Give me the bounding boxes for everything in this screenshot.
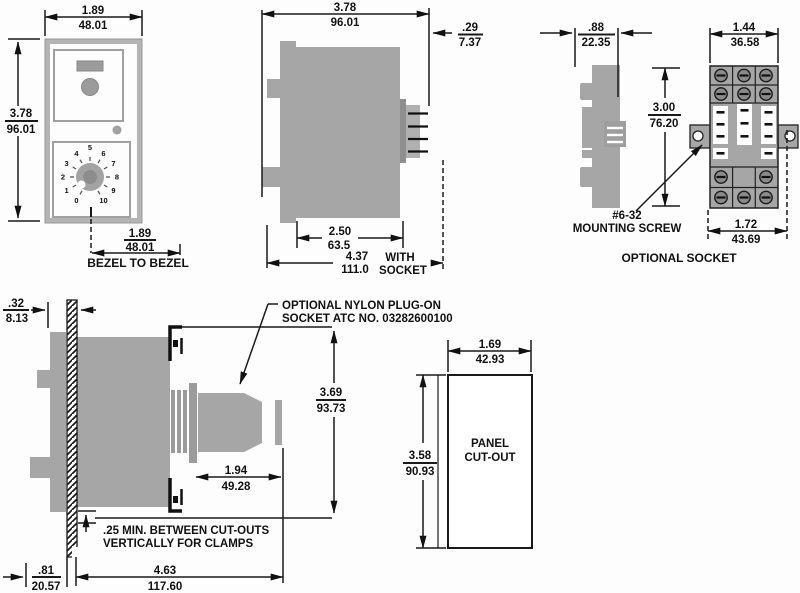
dial-knob-inner (83, 170, 97, 184)
dim-mount-offset-mm: 20.57 (32, 581, 61, 593)
nylon-socket-note-1: OPTIONAL NYLON PLUG-ON (282, 300, 441, 312)
mount-body (68, 337, 170, 507)
dial-label-5: 5 (88, 143, 92, 152)
dim-cutout-height: 3.58 90.93 (403, 375, 446, 548)
dial-label-10: 10 (99, 196, 107, 205)
dim-side-depth-in: 3.78 (334, 2, 357, 14)
dim-side-case: 2.50 63.5 (297, 221, 403, 252)
dim-side-pin-mm: 7.37 (459, 37, 481, 49)
dim-front-height-mm: 96.01 (7, 124, 36, 136)
dim-panel-mm: 8.13 (6, 313, 28, 325)
dial-label-0: 0 (74, 196, 78, 205)
dim-mount-total-in: 4.63 (154, 565, 176, 577)
dim-panel-thickness: .32 8.13 (3, 298, 96, 328)
dim-socket-depth-in: .88 (588, 22, 605, 34)
mount-socket-cap (275, 400, 282, 445)
with-socket-note-2: SOCKET (379, 265, 427, 277)
dim-socket-length-mm: 49.28 (222, 481, 251, 493)
side-flange (280, 41, 296, 223)
clamp-note-2: VERTICALLY FOR CLAMPS (103, 538, 253, 550)
dim-front-height: 3.78 96.01 (5, 39, 40, 221)
dim-socket-height-in: 3.00 (653, 102, 675, 114)
mount-tab-top (37, 370, 50, 388)
dial-label-1: 1 (65, 186, 69, 195)
side-body (296, 47, 400, 218)
dim-mount-offset: .81 20.57 (3, 557, 67, 593)
dim-bezel-in: 1.89 (129, 228, 151, 240)
mount-clamp-bottom (170, 478, 182, 511)
front-view: 0 1 2 3 4 5 6 7 8 9 10 1.89 48.01 3.78 9… (5, 5, 189, 270)
dim-front-width-in: 1.89 (82, 5, 104, 17)
with-socket-note-1: WITH (385, 252, 414, 264)
dim-socket-width: 1.44 36.58 (710, 22, 778, 63)
mounting-view: OPTIONAL NYLON PLUG-ON SOCKET ATC NO. 03… (3, 298, 453, 593)
dim-socket-length: 1.94 49.28 (196, 448, 283, 583)
mount-panel-notch (72, 547, 78, 558)
clamp-clearance-note: .25 MIN. BETWEEN CUT-OUTS VERTICALLY FOR… (78, 511, 269, 550)
dial-label-9: 9 (111, 186, 115, 195)
dim-mount-total: 4.63 117.60 (76, 557, 283, 593)
socket-side-profile (580, 65, 626, 208)
nylon-socket-note-2: SOCKET ATC NO. 03282600100 (282, 313, 453, 325)
front-indicator-bar (77, 61, 103, 71)
optional-socket-title: OPTIONAL SOCKET (621, 251, 737, 265)
dim-side-total-in: 4.37 (346, 251, 368, 263)
dim-front-width: 1.89 48.01 (45, 5, 142, 36)
dim-socket-mounting-mm: 43.69 (732, 234, 761, 246)
front-led (113, 126, 122, 135)
panel-cutout-view: PANEL CUT-OUT 1.69 42.93 3.58 90.93 (403, 339, 532, 548)
dim-socket-length-in: 1.94 (225, 465, 248, 477)
mounting-screw-note-2: MOUNTING SCREW (573, 223, 682, 235)
dial-label-8: 8 (115, 173, 119, 182)
dim-socket-height: 3.00 76.20 (648, 68, 681, 206)
dim-mount-height: 3.69 93.73 (316, 331, 346, 513)
mount-pins (171, 383, 197, 463)
mount-clamp-top (170, 327, 182, 361)
side-view: 3.78 96.01 .29 7.37 2.50 63.5 4.37 111.0… (262, 2, 483, 277)
dimension-drawing: 0 1 2 3 4 5 6 7 8 9 10 1.89 48.01 3.78 9… (0, 0, 800, 593)
clamp-note-1: .25 MIN. BETWEEN CUT-OUTS (103, 525, 269, 537)
mount-plug-socket (198, 393, 262, 452)
socket-front (690, 66, 798, 208)
side-tab-bottom (262, 167, 280, 187)
dim-cutout-width-mm: 42.93 (476, 354, 505, 366)
mount-panel (67, 300, 77, 557)
dim-socket-width-in: 1.44 (733, 22, 756, 34)
side-tab-top (267, 79, 280, 98)
dim-socket-mounting-in: 1.72 (735, 219, 757, 231)
dim-socket-width-mm: 36.58 (731, 37, 760, 49)
dial-knob-notch (78, 181, 86, 189)
dimension-drawing-page: 0 1 2 3 4 5 6 7 8 9 10 1.89 48.01 3.78 9… (0, 0, 800, 593)
dim-cutout-width-in: 1.69 (479, 339, 501, 351)
front-indicator-circle (82, 79, 99, 96)
dim-mount-height-in: 3.69 (320, 387, 342, 399)
dim-side-total-mm: 111.0 (341, 264, 369, 276)
dial-label-3: 3 (65, 159, 69, 168)
dial-label-7: 7 (111, 159, 115, 168)
dim-side-depth-mm: 96.01 (331, 17, 360, 29)
dim-panel-in: .32 (8, 298, 24, 310)
bezel-to-bezel-label: BEZEL TO BEZEL (87, 256, 189, 270)
dim-cutout-height-in: 3.58 (409, 450, 432, 462)
dim-bezel-mm: 48.01 (126, 242, 155, 254)
cutout-label-1: PANEL (471, 438, 509, 450)
dim-bezel-to-bezel: 1.89 48.01 BEZEL TO BEZEL (87, 219, 189, 270)
dim-cutout-height-mm: 90.93 (406, 466, 435, 478)
dim-mount-offset-in: .81 (38, 565, 55, 577)
dim-cutout-width: 1.69 42.93 (448, 339, 531, 372)
dim-socket-depth-mm: 22.35 (582, 37, 611, 49)
dim-front-width-mm: 48.01 (79, 20, 108, 32)
dim-socket-height-mm: 76.20 (650, 118, 679, 130)
optional-socket-view: .88 22.35 (540, 22, 798, 265)
socket-ear-left-hole (693, 131, 703, 141)
dial-label-6: 6 (101, 149, 105, 158)
dim-front-height-in: 3.78 (10, 108, 33, 120)
dim-side-pin: .29 7.37 (433, 22, 483, 49)
cutout-label-2: CUT-OUT (464, 452, 515, 464)
mount-flange (50, 332, 66, 512)
dim-mount-height-mm: 93.73 (317, 403, 346, 415)
mounting-screw-note-1: #6-32 (612, 210, 641, 222)
dim-mount-total-mm: 117.60 (148, 581, 183, 593)
side-socket-plate (400, 99, 406, 163)
mount-tab-bottom (30, 457, 50, 478)
dial-label-2: 2 (61, 173, 65, 182)
nylon-socket-note: OPTIONAL NYLON PLUG-ON SOCKET ATC NO. 03… (240, 300, 453, 384)
dim-side-case-in: 2.50 (329, 226, 351, 238)
dim-side-pin-in: .29 (462, 22, 478, 34)
